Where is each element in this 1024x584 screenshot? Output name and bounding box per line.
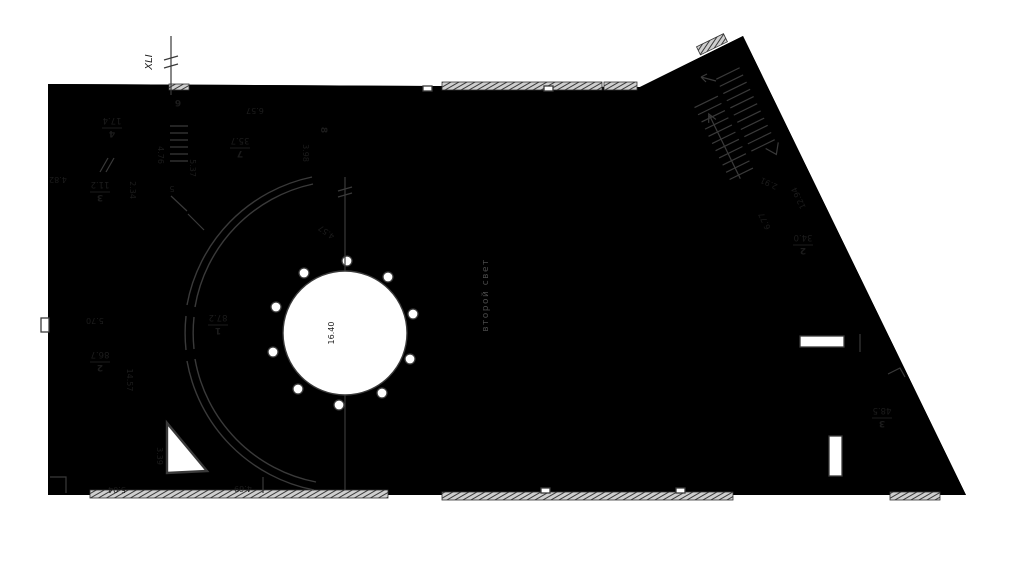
svg-text:35.7: 35.7 xyxy=(231,135,250,145)
dim-4-82: 4.82 xyxy=(49,175,67,184)
dim-4-69: 4.69 xyxy=(234,484,252,493)
axis-label: XLI xyxy=(144,54,155,70)
svg-text:4: 4 xyxy=(109,128,115,138)
svg-text:5.70: 5.70 xyxy=(86,316,104,325)
floor-plan-page: XLI 4 17.4 3 11.2 6 7 35.7 8 2 86.7 1 87… xyxy=(0,0,1024,584)
svg-text:2.34: 2.34 xyxy=(128,181,137,199)
svg-text:4.76: 4.76 xyxy=(156,146,165,164)
svg-text:8: 8 xyxy=(318,127,328,133)
dim-3-39: 3.39 xyxy=(155,447,164,465)
svg-text:4.82: 4.82 xyxy=(49,175,67,184)
dim-5-37: 5.37 xyxy=(188,159,197,177)
svg-text:XLI: XLI xyxy=(144,54,155,70)
second-light-note: второй свет xyxy=(481,258,491,332)
dim-2-34: 2.34 xyxy=(128,181,137,199)
dim-4-76: 4.76 xyxy=(156,146,165,164)
door-leaf-room3-bottom xyxy=(829,436,842,476)
door-leaf-room2-right xyxy=(800,336,844,347)
svg-text:3.98: 3.98 xyxy=(301,144,310,162)
svg-text:87.2: 87.2 xyxy=(209,312,228,322)
perimeter-wall-core xyxy=(48,36,966,495)
svg-text:2: 2 xyxy=(800,245,806,255)
svg-text:48.5: 48.5 xyxy=(873,405,892,415)
svg-text:2: 2 xyxy=(97,362,103,372)
dim-6-57: 6.57 xyxy=(246,106,264,115)
svg-text:16.40: 16.40 xyxy=(327,322,336,345)
svg-text:11.2: 11.2 xyxy=(91,179,110,189)
svg-text:7: 7 xyxy=(237,148,243,158)
svg-text:1: 1 xyxy=(215,325,221,335)
dim-5-70: 5.70 xyxy=(86,316,104,325)
dim-5: 5 xyxy=(169,184,174,193)
svg-text:3.39: 3.39 xyxy=(155,447,164,465)
svg-text:5: 5 xyxy=(169,184,174,193)
second-light-void xyxy=(283,271,407,395)
svg-text:второй свет: второй свет xyxy=(481,258,491,332)
svg-text:14.57: 14.57 xyxy=(125,369,134,392)
svg-text:5.37: 5.37 xyxy=(188,159,197,177)
svg-text:17.4: 17.4 xyxy=(103,115,122,125)
dim-5-04: 5.04 xyxy=(108,485,126,494)
floor-plan-canvas: XLI 4 17.4 3 11.2 6 7 35.7 8 2 86.7 1 87… xyxy=(0,0,1024,584)
svg-text:86.7: 86.7 xyxy=(91,349,110,359)
dim-3-98: 3.98 xyxy=(301,144,310,162)
svg-text:3: 3 xyxy=(879,418,885,428)
room-label-8: 8 xyxy=(318,127,328,133)
svg-text:4.69: 4.69 xyxy=(234,484,252,493)
svg-text:34.0: 34.0 xyxy=(794,232,813,242)
svg-text:6: 6 xyxy=(175,97,181,107)
svg-text:5.04: 5.04 xyxy=(108,485,126,494)
svg-text:3: 3 xyxy=(97,192,103,202)
dim-14-57: 14.57 xyxy=(125,369,134,392)
dim-16-40: 16.40 xyxy=(327,322,336,345)
svg-text:6.57: 6.57 xyxy=(246,106,264,115)
room-label-6: 6 xyxy=(175,97,181,107)
